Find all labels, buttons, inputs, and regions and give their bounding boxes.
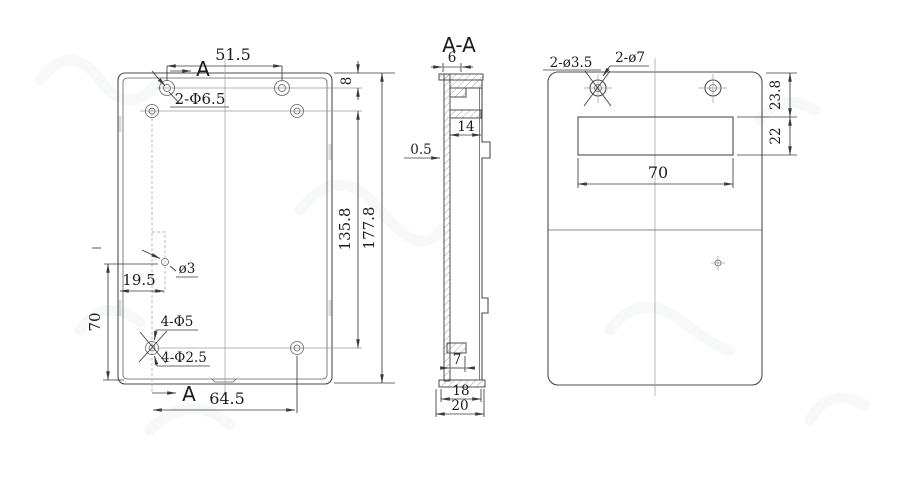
corner-holes-pilot-label: 4-Φ2.5 (161, 350, 207, 366)
section-right-face (482, 80, 490, 380)
bottom-notch (212, 379, 236, 382)
section-left-wall (444, 74, 450, 381)
mount-hole-right (699, 74, 727, 103)
dimension-slot-height: 22 (737, 117, 797, 155)
dim-hole-spacing-top-label: 51.5 (215, 45, 251, 64)
rear-slot (578, 117, 733, 155)
dim-top-hole-offset-label: 8 (339, 77, 355, 86)
rear-view: 2-ø3.5 2-ø7 70 23.8 22 (543, 50, 797, 396)
section-label-top: A (196, 57, 210, 81)
dim-wall-thickness-label: 0.5 (410, 142, 431, 158)
section-label-bottom: A (182, 382, 196, 406)
top-holes-label: 2-Φ6.5 (175, 90, 226, 108)
dim-overall-height-label: 177.8 (360, 207, 378, 250)
section-top-step (450, 80, 482, 88)
side-tab (329, 300, 332, 316)
side-tab (329, 144, 332, 160)
dim-notch-to-bottom-label: 70 (86, 312, 104, 331)
dim-slot-width-label: 70 (648, 163, 668, 182)
section-marker-bottom: A (152, 382, 196, 406)
center-target-mark (711, 256, 725, 270)
dim-slot-top-offset-label: 23.8 (768, 80, 784, 110)
section-marker-top: A (170, 57, 210, 81)
dim-overall-depth-label: 20 (451, 398, 468, 414)
section-mid-rib (450, 110, 481, 118)
dim-top-step-width-label: 6 (448, 50, 457, 66)
drawing-canvas: 51.5 A 2-Φ6.5 8 135.8 177 (0, 0, 900, 500)
dimension-wall-thickness: 0.5 (404, 142, 440, 158)
dim-notch-offset-label: 19.5 (122, 271, 155, 289)
dimension-top-hole-offset: 8 (339, 61, 358, 100)
dim-inner-width-label: 14 (457, 119, 474, 135)
corner-holes-label: 4-Φ5 (161, 314, 194, 330)
side-tab (119, 116, 122, 132)
dimension-hole-spacing-top: 51.5 (167, 45, 282, 81)
label-corner-holes: 4-Φ5 4-Φ2.5 (139, 314, 210, 366)
section-view: A-A 6 14 0.5 (404, 33, 490, 417)
section-top-block (450, 88, 466, 97)
dimension-inner-width: 14 (450, 119, 481, 139)
hole-labels: 2-ø3.5 2-ø7 (543, 50, 649, 106)
dimension-slot-width: 70 (578, 158, 733, 188)
dimension-notch-offset: 19.5 (120, 271, 164, 291)
side-tab (119, 300, 122, 316)
notch-hole-label: ø3 (179, 261, 196, 277)
mount-holes-small-label: 2-ø3.5 (550, 55, 593, 71)
technical-drawing: 51.5 A 2-Φ6.5 8 135.8 177 (0, 0, 900, 500)
dim-bottom-hole-spacing-label: 64.5 (209, 389, 245, 408)
dim-rib-width-label: 7 (453, 352, 462, 368)
mount-holes-large-label: 2-ø7 (615, 50, 645, 66)
dim-inner-depth-label: 18 (452, 383, 469, 399)
dim-hole-pattern-height-label: 135.8 (336, 208, 354, 251)
dim-slot-height-label: 22 (768, 127, 784, 144)
dimension-hole-pattern-height: 135.8 (336, 111, 358, 348)
